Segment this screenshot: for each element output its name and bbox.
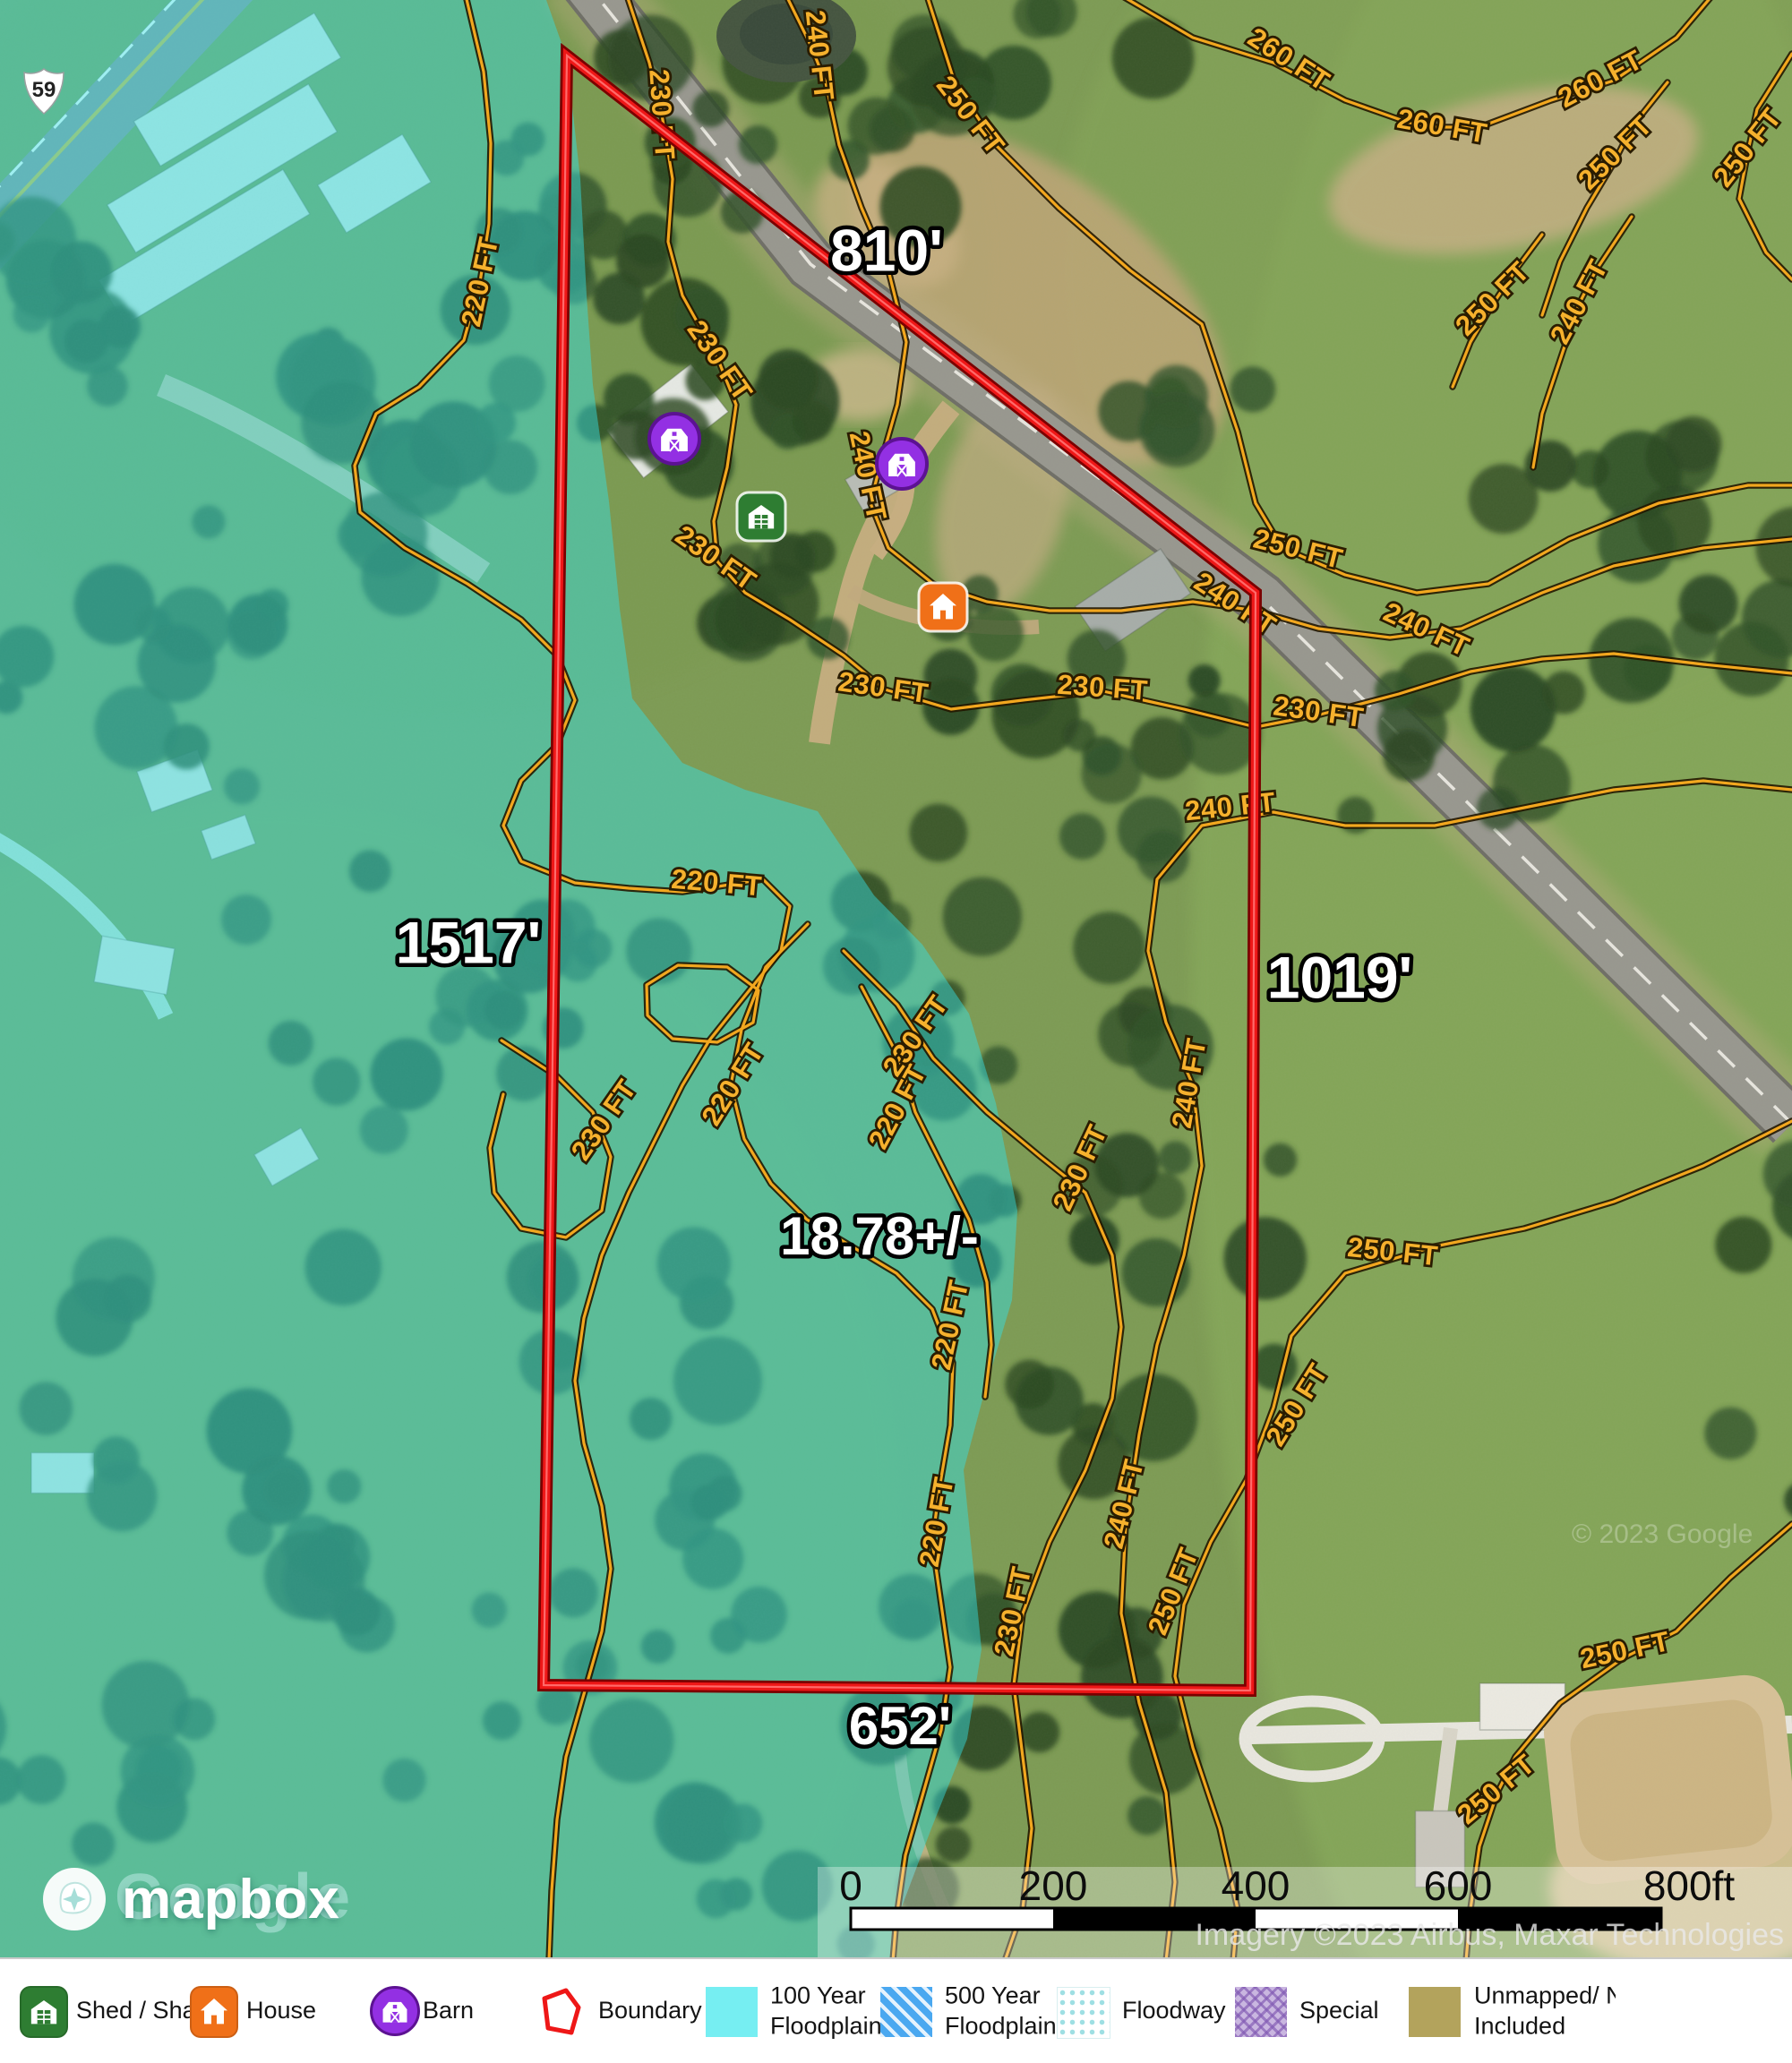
shed-marker[interactable] [737, 492, 785, 541]
aerial-map-canvas[interactable]: 220 FT220 FT220 FT220 FT220 FT220 FT230 … [0, 0, 1792, 1957]
dimension-label: 652' [849, 1696, 951, 1756]
legend-swatch-barn [370, 1986, 420, 2036]
legend-label-boundary: Boundary [598, 1996, 702, 2026]
legend-label-100-year: 100 YearFloodplain [770, 1981, 882, 2042]
legend-label-500-year: 500 YearFloodplain [945, 1981, 1057, 2042]
legend-swatch-500-year [880, 1987, 932, 2037]
map-viewport[interactable]: 220 FT220 FT220 FT220 FT220 FT220 FT230 … [0, 0, 1792, 1957]
legend-swatch-unmapped-not [1409, 1987, 1461, 2037]
google-copyright: © 2023 Google [1572, 1519, 1753, 1549]
map-legend: Shed / ShackHouseBarn Boundary100 YearFl… [0, 1957, 1792, 2063]
dimension-label: 1517' [396, 909, 542, 975]
barn-marker[interactable] [877, 439, 927, 489]
scale-bar: 0200400600800ftImagery ©2023 Airbus, Max… [818, 1862, 1792, 1957]
legend-swatch-100-year [706, 1987, 758, 2037]
dimension-label: 18.78+/- [780, 1206, 979, 1266]
imagery-attribution: Imagery ©2023 Airbus, Maxar Technologies [1195, 1918, 1784, 1952]
legend-swatch-shed-shack [20, 1986, 68, 2038]
mapbox-icon [41, 1866, 107, 1932]
mapbox-logo[interactable]: mapbox [41, 1866, 340, 1932]
dimension-label: 1019' [1267, 944, 1413, 1010]
legend-label-special: Special [1299, 1996, 1379, 2026]
scale-tick-label: 200 [1019, 1862, 1088, 1909]
legend-label-barn: Barn [423, 1996, 474, 2026]
dimension-label: 810' [830, 217, 943, 283]
legend-swatch-floodway [1057, 1987, 1110, 2039]
property-map-screenshot: 220 FT220 FT220 FT220 FT220 FT220 FT230 … [0, 0, 1792, 2063]
legend-swatch-special [1235, 1987, 1287, 2037]
legend-swatch-house [190, 1986, 238, 2038]
scale-tick-label: 600 [1424, 1862, 1493, 1909]
house-marker[interactable] [919, 583, 967, 631]
mapbox-wordmark: mapbox [122, 1868, 340, 1931]
contour-elevation-label: 230 FT [1056, 669, 1148, 706]
scale-tick-label: 400 [1222, 1862, 1290, 1909]
scale-tick-label: 800ft [1643, 1862, 1736, 1909]
legend-label-house: House [246, 1996, 316, 2026]
legend-label-unmapped-not: Unmapped/ NotIncluded [1474, 1981, 1616, 2042]
barn-marker[interactable] [649, 414, 699, 464]
scale-tick-label: 0 [839, 1862, 862, 1909]
legend-swatch-boundary [536, 1986, 584, 2038]
svg-text:59: 59 [32, 78, 56, 102]
legend-label-floodway: Floodway [1122, 1996, 1226, 2026]
